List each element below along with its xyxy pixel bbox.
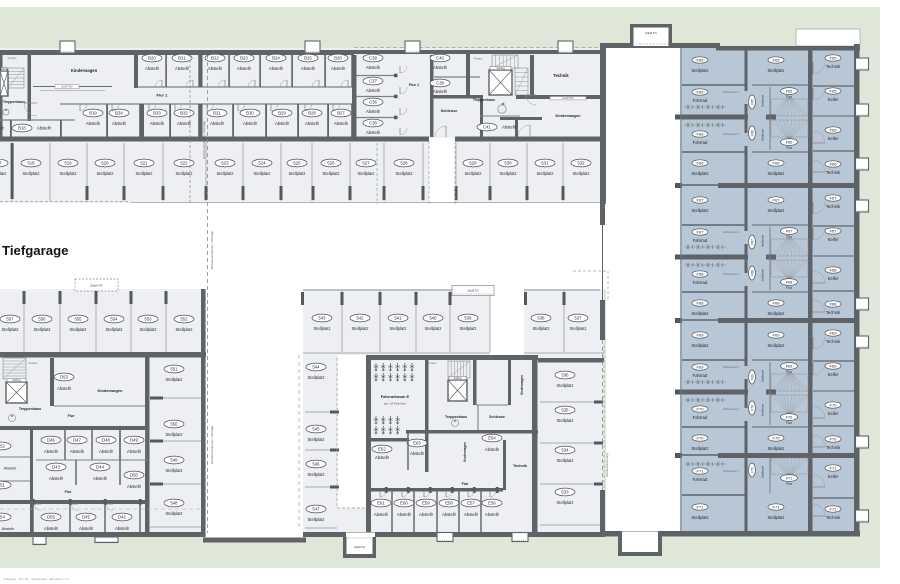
svg-text:Stellplatz: Stellplatz bbox=[768, 171, 785, 176]
svg-text:521: 521 bbox=[140, 161, 148, 166]
svg-text:527: 527 bbox=[362, 161, 370, 166]
svg-text:Treppenhaus: Treppenhaus bbox=[19, 407, 41, 411]
svg-text:Keller: Keller bbox=[828, 237, 839, 242]
svg-text:Flur: Flur bbox=[462, 482, 469, 486]
svg-text:D53: D53 bbox=[60, 375, 68, 380]
svg-text:E56: E56 bbox=[488, 501, 496, 506]
svg-text:Technik: Technik bbox=[553, 73, 569, 78]
svg-text:Kinderwagen: Kinderwagen bbox=[97, 388, 123, 393]
svg-text:B19: B19 bbox=[89, 111, 97, 116]
svg-text:Abstellr: Abstellr bbox=[237, 66, 252, 71]
svg-text:Stellplatz: Stellplatz bbox=[692, 515, 709, 520]
svg-text:F70: F70 bbox=[830, 437, 838, 442]
svg-text:Abstellr: Abstellr bbox=[99, 449, 114, 454]
svg-text:537: 537 bbox=[574, 316, 582, 321]
svg-text:F71: F71 bbox=[830, 507, 838, 512]
svg-text:552: 552 bbox=[180, 317, 188, 322]
svg-text:541: 541 bbox=[394, 316, 402, 321]
svg-text:Abstellr: Abstellr bbox=[243, 121, 258, 126]
svg-text:F66: F66 bbox=[830, 128, 838, 133]
svg-text:532: 532 bbox=[577, 161, 585, 166]
svg-text:Stellplatz: Stellplatz bbox=[692, 208, 709, 213]
svg-text:Abstellr: Abstellr bbox=[127, 449, 142, 454]
svg-text:Schleuse: Schleuse bbox=[761, 128, 765, 141]
svg-text:Stellplatz: Stellplatz bbox=[692, 311, 709, 316]
svg-text:Technik: Technik bbox=[826, 339, 841, 344]
svg-text:Aufzug: Aufzug bbox=[12, 378, 21, 382]
svg-text:542: 542 bbox=[356, 316, 364, 321]
svg-text:D54: D54 bbox=[0, 515, 6, 520]
svg-text:Technik: Technik bbox=[513, 464, 528, 468]
svg-text:Stellplatz: Stellplatz bbox=[23, 171, 40, 176]
svg-text:Abstellr: Abstellr bbox=[177, 121, 192, 126]
svg-text:F65: F65 bbox=[697, 58, 705, 63]
svg-text:Stellplatz: Stellplatz bbox=[460, 326, 477, 331]
svg-text:Fahrradraum E: Fahrradraum E bbox=[381, 394, 410, 399]
svg-text:Tiefgarage · M 1:100 · Woh: Tiefgarage · M 1:100 · Wohnanlage · alle… bbox=[3, 577, 70, 581]
svg-text:F70: F70 bbox=[773, 436, 781, 441]
svg-text:Stellplatz: Stellplatz bbox=[308, 375, 325, 380]
svg-text:E62: E62 bbox=[378, 447, 386, 452]
svg-text:Abstellr: Abstellr bbox=[366, 109, 381, 114]
svg-text:530: 530 bbox=[504, 161, 512, 166]
svg-text:C37: C37 bbox=[369, 79, 377, 84]
svg-text:Treppenhaus: Treppenhaus bbox=[473, 98, 495, 102]
svg-text:Stellplatz: Stellplatz bbox=[692, 343, 709, 348]
svg-text:Schleuse: Schleuse bbox=[761, 268, 765, 281]
svg-text:F66: F66 bbox=[830, 162, 838, 167]
svg-text:Flur: Flur bbox=[786, 421, 793, 425]
svg-text:Flur: Flur bbox=[65, 490, 72, 494]
svg-text:Fahrrad: Fahrrad bbox=[693, 98, 708, 103]
svg-text:Schleuse: Schleuse bbox=[761, 465, 765, 478]
svg-text:Stellplatz: Stellplatz bbox=[60, 171, 77, 176]
svg-text:B22: B22 bbox=[211, 56, 219, 61]
svg-text:539: 539 bbox=[464, 316, 472, 321]
svg-text:D52: D52 bbox=[0, 444, 6, 449]
svg-text:Reihenhaus 4: Reihenhaus 4 bbox=[723, 272, 740, 276]
svg-text:Fahrrad: Fahrrad bbox=[693, 373, 708, 378]
svg-text:Abstellr: Abstellr bbox=[0, 126, 5, 131]
svg-text:522: 522 bbox=[180, 161, 188, 166]
svg-text:Abstellr: Abstellr bbox=[334, 121, 349, 126]
svg-text:D47: D47 bbox=[73, 438, 81, 443]
svg-text:Stellplatz: Stellplatz bbox=[557, 418, 574, 423]
svg-text:Stellplatz: Stellplatz bbox=[768, 343, 785, 348]
svg-text:Stellplatz: Stellplatz bbox=[217, 171, 234, 176]
svg-text:F65: F65 bbox=[830, 89, 838, 94]
svg-text:Keller: Keller bbox=[828, 136, 839, 141]
svg-text:Keller: Keller bbox=[828, 411, 839, 416]
svg-text:Podest: Podest bbox=[474, 57, 483, 61]
svg-text:Schleuse: Schleuse bbox=[761, 94, 765, 107]
svg-text:Stellplatz: Stellplatz bbox=[0, 171, 7, 176]
svg-text:Technik: Technik bbox=[826, 515, 841, 520]
svg-text:F65: F65 bbox=[786, 90, 793, 94]
svg-text:551: 551 bbox=[170, 367, 178, 372]
svg-text:Abstellr: Abstellr bbox=[115, 526, 130, 531]
svg-text:D50: D50 bbox=[130, 473, 138, 478]
svg-text:Abstellr: Abstellr bbox=[366, 130, 381, 135]
svg-text:Stellplatz: Stellplatz bbox=[768, 515, 785, 520]
svg-text:F65: F65 bbox=[830, 56, 838, 61]
svg-text:Abstellr: Abstellr bbox=[374, 512, 389, 517]
svg-text:Abstellr: Abstellr bbox=[79, 526, 94, 531]
svg-text:F69: F69 bbox=[830, 331, 838, 336]
svg-text:Stellplatz: Stellplatz bbox=[166, 468, 183, 473]
svg-text:F65: F65 bbox=[773, 58, 781, 63]
svg-text:Deckenversprung + Schräge: Deckenversprung + Schräge bbox=[210, 231, 214, 269]
svg-text:F66: F66 bbox=[773, 161, 781, 166]
svg-text:Stellplatz: Stellplatz bbox=[166, 377, 183, 382]
svg-text:Abstellr: Abstellr bbox=[93, 476, 108, 481]
svg-text:Keller: Keller bbox=[828, 372, 839, 377]
svg-text:B30: B30 bbox=[246, 111, 254, 116]
svg-text:F67: F67 bbox=[750, 239, 754, 245]
svg-text:Stellplatz: Stellplatz bbox=[166, 432, 183, 437]
svg-text:Stellplatz: Stellplatz bbox=[692, 446, 709, 451]
svg-text:Abstellr: Abstellr bbox=[275, 121, 290, 126]
svg-text:Schleuse: Schleuse bbox=[441, 109, 458, 113]
svg-text:D51: D51 bbox=[0, 483, 6, 488]
svg-text:Abstellr: Abstellr bbox=[86, 121, 101, 126]
svg-text:Keller: Keller bbox=[828, 97, 839, 102]
svg-text:D48: D48 bbox=[102, 438, 110, 443]
svg-text:Abstellr: Abstellr bbox=[2, 527, 15, 531]
svg-text:Stellplatz: Stellplatz bbox=[465, 171, 482, 176]
svg-text:F66: F66 bbox=[697, 132, 705, 137]
svg-text:Stellplatz: Stellplatz bbox=[314, 326, 331, 331]
svg-text:Fahrrad: Fahrrad bbox=[693, 415, 708, 420]
svg-text:F67: F67 bbox=[786, 230, 793, 234]
svg-text:Flur 1: Flur 1 bbox=[157, 93, 169, 98]
svg-text:Abstellr: Abstellr bbox=[208, 66, 223, 71]
svg-text:F68: F68 bbox=[773, 301, 781, 306]
svg-text:E59: E59 bbox=[422, 501, 430, 506]
svg-text:F67: F67 bbox=[830, 196, 838, 201]
svg-text:Abstellr: Abstellr bbox=[127, 484, 142, 489]
svg-text:Aufzug: Aufzug bbox=[496, 66, 505, 70]
svg-text:Abstellr: Abstellr bbox=[175, 66, 190, 71]
svg-text:548: 548 bbox=[170, 501, 178, 506]
svg-text:Stellplatz: Stellplatz bbox=[323, 171, 340, 176]
svg-text:F66: F66 bbox=[786, 141, 793, 145]
svg-text:Stellplatz: Stellplatz bbox=[768, 311, 785, 316]
svg-text:Reihenhaus 1: Reihenhaus 1 bbox=[723, 90, 740, 94]
svg-text:Fahrrad: Fahrrad bbox=[693, 280, 708, 285]
svg-text:Abstellr: Abstellr bbox=[433, 89, 448, 94]
svg-text:B31: B31 bbox=[213, 111, 221, 116]
svg-text:F69: F69 bbox=[697, 333, 705, 338]
svg-text:Stellplatz: Stellplatz bbox=[176, 327, 193, 332]
svg-text:Podest: Podest bbox=[29, 361, 38, 365]
svg-text:Abstellr: Abstellr bbox=[269, 66, 284, 71]
svg-text:543: 543 bbox=[318, 316, 326, 321]
svg-text:F68: F68 bbox=[697, 272, 705, 277]
svg-text:Tiefgarage: Tiefgarage bbox=[2, 243, 68, 258]
svg-text:E63: E63 bbox=[413, 441, 421, 446]
svg-text:540: 540 bbox=[429, 316, 437, 321]
svg-text:Abstellr: Abstellr bbox=[366, 65, 381, 70]
svg-text:Fahrrad: Fahrrad bbox=[693, 238, 708, 243]
svg-text:Deckenversprung + Schräge: Deckenversprung + Schräge bbox=[202, 121, 206, 159]
svg-text:B23: B23 bbox=[240, 56, 248, 61]
svg-text:523: 523 bbox=[221, 161, 229, 166]
svg-text:Stellplatz: Stellplatz bbox=[308, 437, 325, 442]
svg-text:Abstellr: Abstellr bbox=[485, 447, 500, 452]
svg-text:Deckenversprung: Deckenversprung bbox=[605, 453, 609, 477]
svg-text:B24: B24 bbox=[272, 56, 280, 61]
svg-text:Abstellr: Abstellr bbox=[305, 121, 320, 126]
svg-text:Kinderwagen: Kinderwagen bbox=[555, 113, 581, 118]
svg-text:F67: F67 bbox=[697, 230, 705, 235]
svg-text:C35: C35 bbox=[369, 121, 377, 126]
svg-text:556: 556 bbox=[38, 317, 46, 322]
svg-text:B25: B25 bbox=[304, 56, 312, 61]
svg-text:F68: F68 bbox=[830, 302, 838, 307]
svg-text:534: 534 bbox=[561, 448, 569, 453]
svg-text:Kinderwagen: Kinderwagen bbox=[463, 442, 467, 462]
svg-text:Stellplatz: Stellplatz bbox=[140, 327, 157, 332]
svg-text:F71: F71 bbox=[830, 466, 838, 471]
svg-text:Podest: Podest bbox=[428, 361, 437, 365]
svg-text:544: 544 bbox=[312, 365, 320, 370]
svg-text:Reihenhaus 7: Reihenhaus 7 bbox=[723, 469, 740, 473]
svg-text:Stellplatz: Stellplatz bbox=[396, 171, 413, 176]
svg-text:Abstellr: Abstellr bbox=[485, 512, 500, 517]
svg-text:Stellplatz: Stellplatz bbox=[692, 171, 709, 176]
svg-text:Stellplatz: Stellplatz bbox=[500, 171, 517, 176]
svg-text:D45: D45 bbox=[82, 515, 90, 520]
svg-text:B34: B34 bbox=[115, 111, 123, 116]
svg-text:B20: B20 bbox=[148, 56, 156, 61]
svg-text:F70: F70 bbox=[697, 436, 705, 441]
svg-text:D49: D49 bbox=[130, 438, 138, 443]
svg-text:Abstellr: Abstellr bbox=[37, 126, 52, 131]
svg-text:F68: F68 bbox=[830, 268, 838, 273]
svg-text:F71: F71 bbox=[750, 467, 754, 473]
svg-text:Treppenhaus: Treppenhaus bbox=[445, 415, 467, 419]
svg-text:F70: F70 bbox=[830, 403, 838, 408]
svg-text:Abstellr: Abstellr bbox=[145, 66, 160, 71]
svg-text:D43: D43 bbox=[52, 465, 60, 470]
svg-text:Stellplatz: Stellplatz bbox=[106, 327, 123, 332]
svg-text:529: 529 bbox=[469, 161, 477, 166]
svg-text:524: 524 bbox=[258, 161, 266, 166]
svg-text:Abstellr: Abstellr bbox=[301, 66, 316, 71]
svg-text:547: 547 bbox=[312, 507, 320, 512]
svg-text:Flur 1: Flur 1 bbox=[409, 83, 419, 87]
svg-text:Zuluft TG: Zuluft TG bbox=[645, 31, 657, 35]
svg-text:Aufzug: Aufzug bbox=[453, 376, 462, 380]
svg-text:F70: F70 bbox=[750, 405, 754, 411]
svg-text:ELEKTRO: ELEKTRO bbox=[61, 86, 72, 89]
svg-text:F69: F69 bbox=[830, 364, 838, 369]
svg-text:F68: F68 bbox=[786, 281, 793, 285]
svg-text:B21: B21 bbox=[178, 56, 186, 61]
svg-text:F69: F69 bbox=[697, 365, 705, 370]
svg-text:Stellplatz: Stellplatz bbox=[768, 68, 785, 73]
svg-text:533: 533 bbox=[561, 490, 569, 495]
svg-text:Zuluft TG: Zuluft TG bbox=[354, 545, 365, 549]
svg-text:Stellplatz: Stellplatz bbox=[97, 171, 114, 176]
svg-text:E60: E60 bbox=[400, 501, 408, 506]
svg-text:Abstellr: Abstellr bbox=[464, 512, 479, 517]
svg-text:519: 519 bbox=[64, 161, 72, 166]
svg-text:Stellplatz: Stellplatz bbox=[768, 446, 785, 451]
svg-text:525: 525 bbox=[293, 161, 301, 166]
svg-text:Podest: Podest bbox=[8, 56, 17, 60]
svg-text:Zuluft TG: Zuluft TG bbox=[467, 289, 479, 293]
svg-text:Zuluft TG: Zuluft TG bbox=[90, 284, 103, 288]
svg-text:550: 550 bbox=[170, 422, 178, 427]
svg-text:546: 546 bbox=[312, 462, 320, 467]
svg-text:Schleuse: Schleuse bbox=[489, 415, 505, 419]
svg-text:Reihenhaus 3: Reihenhaus 3 bbox=[723, 230, 740, 234]
svg-text:Stellplatz: Stellplatz bbox=[692, 68, 709, 73]
svg-text:526: 526 bbox=[327, 161, 335, 166]
svg-text:535: 535 bbox=[561, 408, 569, 413]
svg-text:Stellplatz: Stellplatz bbox=[557, 383, 574, 388]
svg-text:Kinderwagen: Kinderwagen bbox=[520, 375, 524, 395]
svg-text:F71: F71 bbox=[697, 469, 705, 474]
svg-text:Stellplatz: Stellplatz bbox=[289, 171, 306, 176]
svg-text:D55: D55 bbox=[47, 515, 55, 520]
svg-text:F69: F69 bbox=[773, 333, 781, 338]
svg-text:Flur: Flur bbox=[786, 482, 793, 486]
svg-text:C36: C36 bbox=[369, 100, 377, 105]
svg-text:B33: B33 bbox=[153, 111, 161, 116]
svg-text:549: 549 bbox=[170, 458, 178, 463]
svg-text:F71: F71 bbox=[786, 477, 793, 481]
svg-text:Abstellr: Abstellr bbox=[112, 121, 127, 126]
svg-text:F68: F68 bbox=[750, 270, 754, 276]
svg-text:D44: D44 bbox=[96, 465, 104, 470]
svg-text:Abstellr: Abstellr bbox=[410, 451, 425, 456]
svg-text:Kinderwagen: Kinderwagen bbox=[71, 68, 98, 73]
svg-text:Abstellr: Abstellr bbox=[4, 467, 17, 471]
svg-text:520: 520 bbox=[101, 161, 109, 166]
svg-text:C40: C40 bbox=[436, 56, 444, 61]
svg-text:Schleuse: Schleuse bbox=[761, 369, 765, 382]
svg-text:ges. 18 Fahrräder: ges. 18 Fahrräder bbox=[384, 402, 406, 406]
svg-text:Stellplatz: Stellplatz bbox=[390, 326, 407, 331]
svg-text:F71: F71 bbox=[697, 505, 705, 510]
svg-text:Schleuse: Schleuse bbox=[761, 234, 765, 247]
svg-text:Keller: Keller bbox=[828, 474, 839, 479]
svg-text:E61: E61 bbox=[377, 501, 385, 506]
svg-text:Stellplatz: Stellplatz bbox=[537, 171, 554, 176]
svg-text:Stellplatz: Stellplatz bbox=[254, 171, 271, 176]
svg-text:Stellplatz: Stellplatz bbox=[2, 327, 19, 332]
svg-text:D46: D46 bbox=[47, 438, 55, 443]
svg-text:Stellplatz: Stellplatz bbox=[70, 327, 87, 332]
svg-text:Schleuse: Schleuse bbox=[761, 403, 765, 416]
svg-text:C38: C38 bbox=[436, 81, 444, 86]
svg-text:F65: F65 bbox=[697, 90, 705, 95]
svg-text:F69: F69 bbox=[786, 365, 793, 369]
svg-text:Abstellr: Abstellr bbox=[502, 125, 517, 130]
svg-text:531: 531 bbox=[541, 161, 549, 166]
svg-text:Abstellr: Abstellr bbox=[331, 66, 346, 71]
svg-text:545: 545 bbox=[312, 427, 320, 432]
svg-text:Flur: Flur bbox=[68, 414, 75, 418]
svg-text:E58: E58 bbox=[445, 501, 453, 506]
svg-text:Abstellr: Abstellr bbox=[375, 455, 390, 460]
svg-text:Abstellr: Abstellr bbox=[150, 121, 165, 126]
svg-text:F68: F68 bbox=[697, 301, 705, 306]
svg-text:F71: F71 bbox=[773, 505, 781, 510]
svg-text:Abstellr: Abstellr bbox=[442, 512, 457, 517]
svg-text:536: 536 bbox=[561, 373, 569, 378]
svg-text:Stellplatz: Stellplatz bbox=[308, 472, 325, 477]
svg-text:Abstellr: Abstellr bbox=[419, 512, 434, 517]
svg-text:Treppenhaus: Treppenhaus bbox=[3, 100, 25, 104]
svg-text:538: 538 bbox=[537, 316, 545, 321]
svg-text:Flur: Flur bbox=[786, 146, 793, 150]
svg-text:555: 555 bbox=[74, 317, 82, 322]
svg-text:E64: E64 bbox=[488, 436, 496, 441]
svg-text:Reihenhaus 6: Reihenhaus 6 bbox=[723, 407, 740, 411]
svg-text:Technik: Technik bbox=[826, 170, 841, 175]
svg-text:Fahrrad: Fahrrad bbox=[693, 477, 708, 482]
svg-text:Abstellr: Abstellr bbox=[44, 449, 59, 454]
svg-text:Fahrrad: Fahrrad bbox=[693, 140, 708, 145]
svg-text:Abstellr: Abstellr bbox=[366, 88, 381, 93]
svg-text:Reihenhaus 2: Reihenhaus 2 bbox=[723, 132, 740, 136]
svg-text:F65: F65 bbox=[750, 99, 754, 105]
svg-text:E57: E57 bbox=[467, 501, 475, 506]
svg-text:B29: B29 bbox=[278, 111, 286, 116]
svg-text:Aufzug: Aufzug bbox=[0, 67, 9, 71]
svg-text:F67: F67 bbox=[773, 198, 781, 203]
svg-text:Abstellr: Abstellr bbox=[57, 386, 72, 391]
svg-text:Abstellr: Abstellr bbox=[49, 476, 64, 481]
svg-text:Technik: Technik bbox=[826, 64, 841, 69]
svg-text:B32: B32 bbox=[180, 111, 188, 116]
svg-text:B18: B18 bbox=[18, 126, 26, 131]
svg-text:Stellplatz: Stellplatz bbox=[358, 171, 375, 176]
svg-text:Technik: Technik bbox=[826, 204, 841, 209]
svg-text:557: 557 bbox=[6, 317, 14, 322]
svg-text:Technik: Technik bbox=[826, 310, 841, 315]
svg-text:554: 554 bbox=[110, 317, 118, 322]
svg-text:F70: F70 bbox=[697, 407, 705, 412]
svg-text:Abstellr: Abstellr bbox=[210, 121, 225, 126]
svg-text:518: 518 bbox=[27, 161, 35, 166]
svg-text:Stellplatz: Stellplatz bbox=[768, 208, 785, 213]
svg-text:Abstellr: Abstellr bbox=[70, 449, 85, 454]
svg-text:Abstellr: Abstellr bbox=[44, 526, 59, 531]
svg-text:Abstellr: Abstellr bbox=[397, 512, 412, 517]
svg-text:Reihenhaus 5: Reihenhaus 5 bbox=[723, 365, 740, 369]
svg-text:F67: F67 bbox=[697, 198, 705, 203]
svg-text:F70: F70 bbox=[786, 416, 793, 420]
svg-text:Stellplatz: Stellplatz bbox=[533, 326, 550, 331]
svg-text:Stellplatz: Stellplatz bbox=[136, 171, 153, 176]
svg-text:Stellplatz: Stellplatz bbox=[570, 326, 587, 331]
svg-text:C39: C39 bbox=[369, 56, 377, 61]
svg-text:528: 528 bbox=[400, 161, 408, 166]
svg-text:Flur: Flur bbox=[786, 286, 793, 290]
svg-text:Abstellr: Abstellr bbox=[433, 65, 448, 70]
svg-text:B27: B27 bbox=[337, 111, 345, 116]
svg-text:Deckenversprung + Schräge: Deckenversprung + Schräge bbox=[210, 426, 214, 464]
svg-text:ELEKTRO: ELEKTRO bbox=[562, 97, 573, 100]
svg-text:C41: C41 bbox=[483, 125, 491, 130]
svg-text:Stellplatz: Stellplatz bbox=[352, 326, 369, 331]
svg-text:Stellplatz: Stellplatz bbox=[425, 326, 442, 331]
